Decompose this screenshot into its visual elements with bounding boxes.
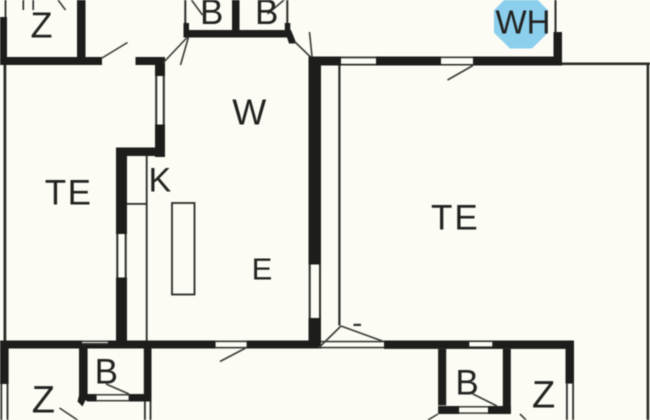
svg-text:TE: TE bbox=[45, 174, 93, 213]
svg-text:E: E bbox=[252, 251, 273, 286]
svg-text:B: B bbox=[455, 364, 478, 403]
svg-text:Z: Z bbox=[32, 380, 55, 420]
svg-text:WH: WH bbox=[496, 4, 551, 41]
svg-text:B: B bbox=[95, 353, 118, 392]
svg-text:W: W bbox=[232, 91, 266, 132]
svg-text:TE: TE bbox=[431, 198, 480, 237]
svg-text:B: B bbox=[255, 0, 278, 32]
svg-text:B: B bbox=[200, 0, 223, 32]
svg-text:Z: Z bbox=[31, 5, 53, 46]
svg-text:K: K bbox=[149, 162, 172, 200]
svg-text:Z: Z bbox=[532, 375, 555, 417]
